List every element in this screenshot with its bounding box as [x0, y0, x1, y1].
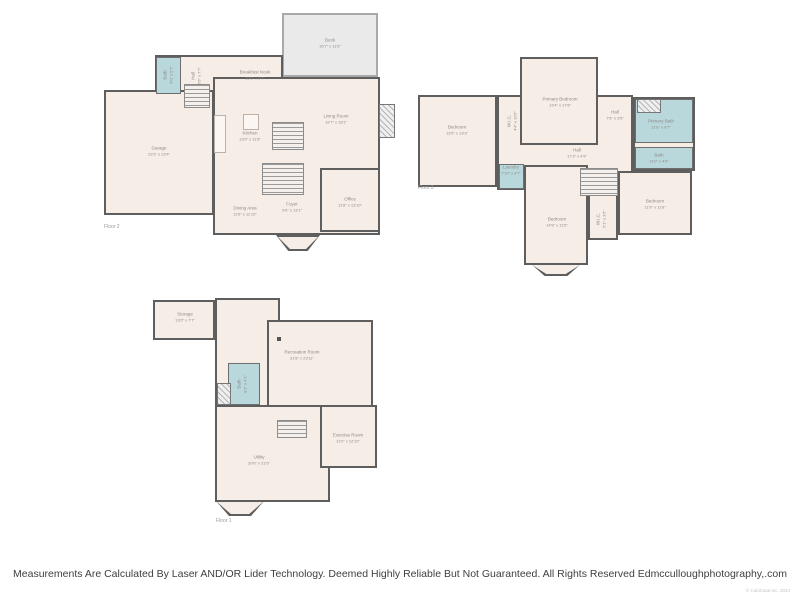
- disclaimer-text: Measurements Are Calculated By Laser AND…: [0, 568, 800, 580]
- recreation-room-dimensions: 31'8" x 23'11": [284, 355, 319, 360]
- floor-1-label: Floor 1: [216, 518, 232, 524]
- utility-bay-window: [215, 500, 265, 516]
- exercise-room-name: Exercise Room: [333, 432, 364, 438]
- storage-label: Storage13'0" x 7'7": [175, 311, 195, 322]
- storage-dimensions: 13'0" x 7'7": [175, 317, 195, 322]
- support-column: [277, 337, 281, 341]
- mechanical-closet: [217, 383, 231, 405]
- utility-bay-window-glass: [217, 502, 263, 514]
- utility-room: [215, 405, 330, 502]
- utility-dimensions: 20'6" x 21'6": [248, 460, 270, 465]
- stairs-f1: [277, 420, 307, 438]
- utility-label: Utility20'6" x 21'6": [248, 454, 270, 465]
- recreation-room-label: Recreation Room31'8" x 23'11": [284, 349, 319, 360]
- floor-1: Storage13'0" x 7'7"Recreation Room31'8" …: [0, 0, 800, 600]
- storage-name: Storage: [175, 311, 195, 317]
- bath-f1-label: Bath8'1" x 4'1": [236, 375, 247, 393]
- bath-f1-dimensions: 8'1" x 4'1": [242, 375, 247, 393]
- exercise-room-dimensions: 11'0" x 12'10": [333, 438, 364, 443]
- floorplan-page: Deck16'7" x 11'9"Breakfast Nook10'8" x 9…: [0, 0, 800, 600]
- exercise-room-label: Exercise Room11'0" x 12'10": [333, 432, 364, 443]
- recreation-room-name: Recreation Room: [284, 349, 319, 355]
- copyright-text: © CubiCasa Inc, 2024: [746, 588, 790, 593]
